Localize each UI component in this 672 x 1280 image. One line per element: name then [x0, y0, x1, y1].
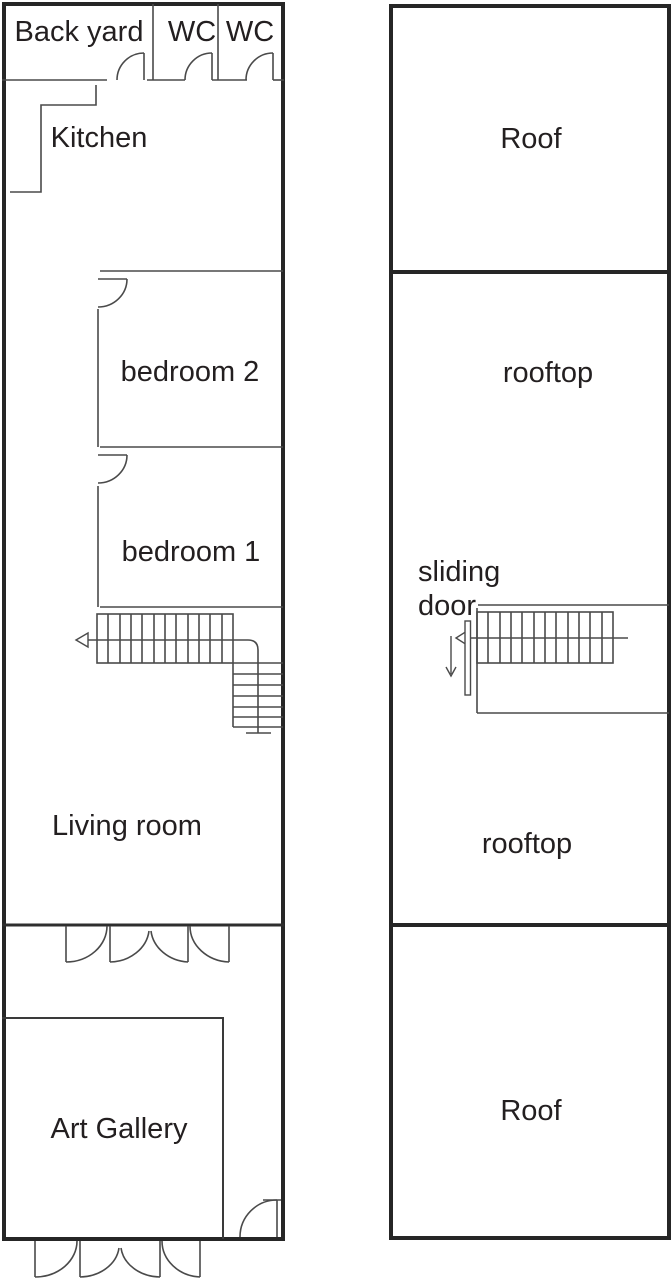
bedroom-2-door: [98, 279, 127, 307]
room-label-kitchen: Kitchen: [51, 122, 148, 154]
room-label-roof-front: Roof: [500, 123, 562, 155]
ground-floor-plan: Back yard WC WC Kitchen bedroom 2 bedroo…: [2, 4, 284, 1277]
room-label-wc-left: WC: [168, 16, 216, 48]
entrance-folding-doors: [35, 1241, 200, 1277]
room-label-art-gallery: Art Gallery: [51, 1113, 188, 1145]
corridor-door: [240, 1200, 281, 1237]
label-sliding-door-line2: door: [418, 590, 476, 622]
wc-right-door: [246, 53, 273, 80]
room-label-bedroom-1: bedroom 1: [122, 536, 261, 568]
living-gallery-folding-doors: [66, 926, 229, 962]
rooftop-stairwell: [456, 605, 669, 713]
kitchen-backyard-door: [117, 53, 144, 80]
room-label-wc-right: WC: [226, 16, 274, 48]
label-sliding-door-line1: sliding: [418, 556, 500, 588]
room-label-living-room: Living room: [52, 810, 202, 842]
ground-outer-wall: [4, 4, 283, 1239]
room-label-rooftop-lower: rooftop: [482, 828, 572, 860]
room-label-bedroom-2: bedroom 2: [121, 356, 260, 388]
bedroom-1-walls: [98, 447, 283, 607]
room-label-rooftop-upper: rooftop: [503, 357, 593, 389]
room-label-back-yard: Back yard: [15, 16, 144, 48]
roof-plan: Roof rooftop sliding door rooftop Roof: [389, 6, 669, 1238]
sliding-door-motion-arrow-icon: [446, 636, 456, 676]
bedroom-1-door: [98, 455, 127, 483]
room-label-roof-back: Roof: [500, 1095, 562, 1127]
wc-left-door: [185, 53, 212, 80]
stair-arrow-icon: [76, 633, 88, 647]
floor-plan-canvas: Back yard WC WC Kitchen bedroom 2 bedroo…: [0, 0, 672, 1280]
ground-stairs: [76, 614, 283, 733]
floor-plan-drawing: Back yard WC WC Kitchen bedroom 2 bedroo…: [0, 0, 672, 1280]
roof-outer-wall: [391, 6, 669, 1238]
sliding-door-panel: [465, 621, 471, 695]
